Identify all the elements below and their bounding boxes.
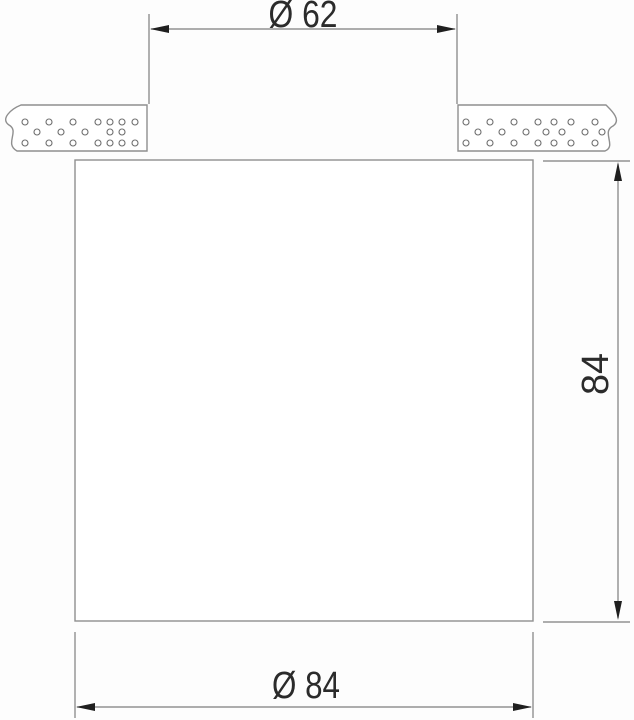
ceiling-panel-right <box>458 105 616 151</box>
hatch-dot <box>58 129 64 135</box>
hatch-dot <box>119 129 125 135</box>
hatch-dot <box>463 119 469 125</box>
technical-dimension-drawing: Ø 62 84 Ø 84 <box>0 0 634 720</box>
top-dimension: Ø 62 <box>149 0 457 104</box>
hatch-dot <box>119 119 125 125</box>
hatch-dot <box>511 119 517 125</box>
dim-arrow-right <box>437 25 456 33</box>
hatch-dot <box>568 140 574 146</box>
hatch-dot <box>132 119 138 125</box>
hatch-dot <box>95 119 101 125</box>
hatch-dot <box>34 129 40 135</box>
right-dimension: 84 <box>543 161 630 622</box>
hatch-dot <box>70 119 76 125</box>
hatch-dot <box>535 140 541 146</box>
dim-arrow-right <box>513 703 532 711</box>
hatch-dot <box>107 129 113 135</box>
hatch-dot <box>22 119 28 125</box>
dim-arrow-left <box>150 25 169 33</box>
hatch-dot <box>132 140 138 146</box>
hatch-dot <box>487 119 493 125</box>
hatch-dot <box>559 129 565 135</box>
dim-arrow-up <box>614 162 622 181</box>
bottom-dimension: Ø 84 <box>75 632 533 718</box>
hatch-dot <box>582 129 588 135</box>
hatch-dot <box>82 129 88 135</box>
hatch-dot <box>499 129 505 135</box>
body-diameter-label: Ø 84 <box>272 665 340 707</box>
hatch-dot <box>46 119 52 125</box>
dim-arrow-down <box>614 601 622 620</box>
hatch-dot <box>70 140 76 146</box>
hatch-dot <box>523 129 529 135</box>
cutout-diameter-label: Ø 62 <box>269 0 338 36</box>
hatch-dot <box>107 119 113 125</box>
hatch-dot <box>46 140 52 146</box>
hatch-dot <box>22 140 28 146</box>
fixture-body <box>75 160 533 621</box>
hatch-dot <box>119 140 125 146</box>
hatch-dot <box>551 119 557 125</box>
hatch-dot <box>463 140 469 146</box>
dim-arrow-left <box>76 703 95 711</box>
hatch-dot <box>535 119 541 125</box>
ceiling-panel-left <box>6 105 147 151</box>
hatch-dot <box>551 140 557 146</box>
hatch-dot <box>511 140 517 146</box>
hatch-dot <box>95 140 101 146</box>
hatch-dot <box>487 140 493 146</box>
hatch-dot <box>107 140 113 146</box>
height-label: 84 <box>575 353 617 395</box>
hatch-dot <box>543 129 549 135</box>
hatch-dot <box>568 119 574 125</box>
hatch-dot <box>475 129 481 135</box>
hatch-dot <box>592 140 598 146</box>
hatch-dot <box>592 119 598 125</box>
hatch-dot <box>599 129 605 135</box>
